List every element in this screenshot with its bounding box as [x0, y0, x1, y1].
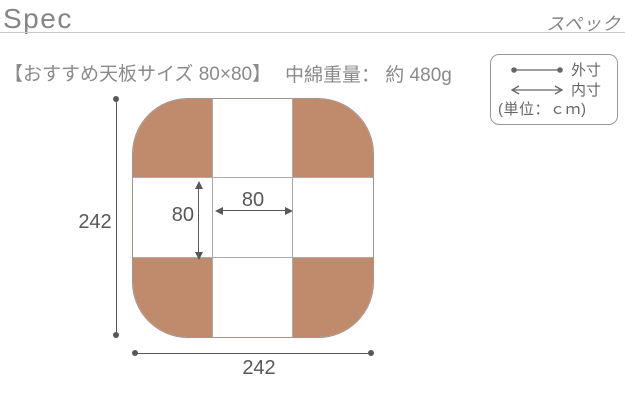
inner-dimension-arrow-icon: [510, 85, 564, 95]
board-cell-top-center: [213, 99, 293, 178]
recommended-tabletop-size-label: 【おすすめ天板サイズ 80×80】: [4, 59, 271, 86]
arrowhead-down-icon: [195, 252, 203, 260]
spec-page: Spec スペック 【おすすめ天板サイズ 80×80】 中綿重量： 約 480g…: [0, 0, 625, 410]
outer-width-endpoint-dot-right: [368, 350, 374, 356]
outer-width-value: 242: [231, 357, 287, 379]
arrowhead-up-icon: [195, 181, 203, 189]
header-divider: [0, 32, 625, 33]
outer-height-endpoint-dot-top: [113, 96, 119, 102]
grid-line-horizontal-bottom: [133, 257, 373, 258]
dimension-legend-box: 外寸 内寸 (単位：ｃｍ): [490, 54, 618, 125]
inner-height-value: 80: [162, 204, 194, 226]
grid-line-vertical-right: [292, 99, 293, 337]
arrowhead-left-icon: [215, 207, 223, 215]
outer-dimension-label: 外寸: [571, 59, 601, 80]
grid-line-vertical-left: [212, 99, 213, 337]
unit-note: (単位：ｃｍ): [497, 100, 611, 119]
outer-dimension-legend-row: 外寸: [497, 60, 611, 79]
board-cell-bottom-center: [213, 258, 293, 337]
arrowhead-right-icon: [285, 207, 293, 215]
outer-height-dimension-line: [116, 99, 117, 335]
board-cell-bottom-right: [293, 258, 373, 337]
page-title: Spec: [3, 3, 73, 35]
outer-height-value: 242: [76, 211, 114, 233]
board-cell-top-right: [293, 99, 373, 178]
inner-width-value: 80: [233, 189, 273, 211]
inner-dimension-legend-row: 内寸: [497, 80, 611, 99]
board-cell-top-left: [133, 99, 213, 178]
outer-dimension-line-icon: [510, 65, 564, 75]
outer-width-dimension-line: [136, 353, 371, 354]
board-cell-middle-right: [293, 178, 373, 257]
inner-dimension-label: 内寸: [571, 79, 601, 100]
board-cell-bottom-left: [133, 258, 213, 337]
grid-line-horizontal-top: [133, 177, 373, 178]
outer-width-endpoint-dot-left: [132, 350, 138, 356]
outer-height-endpoint-dot-bottom: [113, 332, 119, 338]
filling-weight-label: 中綿重量： 約 480g: [285, 60, 452, 87]
inner-height-arrow-line: [198, 185, 199, 256]
